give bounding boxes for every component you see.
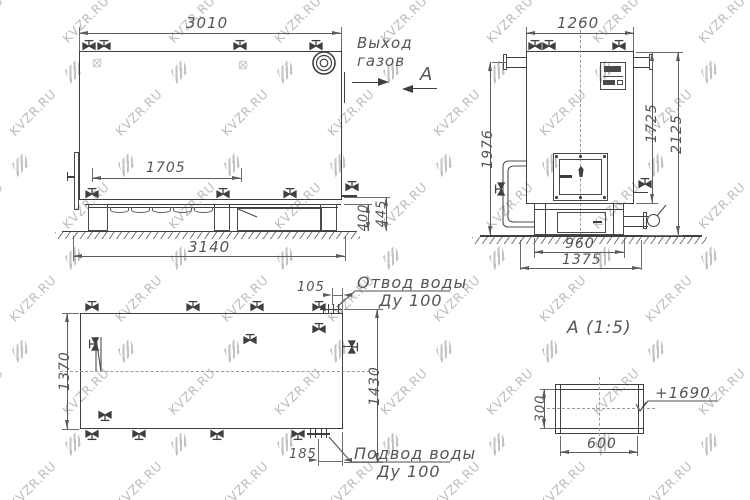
ash-box	[237, 208, 322, 231]
watermark-logo-icon	[224, 338, 241, 363]
watermark-logo-icon	[65, 245, 82, 270]
watermark-text: KVZR.RU	[165, 365, 218, 418]
watermark-text: KVZR.RU	[483, 0, 536, 46]
detail-frame-outer	[555, 384, 644, 434]
base-front	[534, 203, 624, 235]
line	[88, 207, 338, 208]
dim-1430: 1430	[367, 366, 383, 406]
dim-line-400	[368, 204, 369, 231]
line	[344, 309, 383, 310]
watermark-text: KVZR.RU	[695, 0, 748, 46]
watermark-logo-icon	[701, 59, 718, 84]
dim-line-1370	[67, 313, 68, 429]
gas-arrow-line	[352, 82, 380, 83]
valve-icon	[242, 333, 258, 345]
drain-valve-icon	[344, 180, 360, 192]
base-arc	[194, 207, 213, 213]
watermark-text: KVZR.RU	[536, 86, 589, 139]
dim-line-1375	[520, 268, 641, 269]
line	[315, 429, 316, 438]
line	[318, 439, 319, 466]
line	[344, 197, 390, 198]
door-handle	[559, 175, 572, 178]
watermark-text: KVZR.RU	[642, 272, 695, 325]
damper-handle	[657, 205, 666, 216]
watermark-logo-icon	[648, 152, 665, 177]
line	[85, 204, 341, 205]
dim-line-1725	[652, 52, 653, 203]
valve-icon	[84, 429, 100, 441]
drain-valve-icon	[215, 187, 231, 199]
valve-icon	[96, 39, 112, 51]
watermark-logo-icon	[12, 152, 29, 177]
watermark-logo-icon	[489, 245, 506, 270]
valve-icon	[81, 39, 97, 51]
watermark-logo-icon	[65, 431, 82, 456]
watermark-text: KVZR.RU	[0, 365, 6, 418]
line	[560, 436, 561, 456]
watermark-text: KVZR.RU	[218, 272, 271, 325]
view-detail-a: А (1:5) 300 600 +1690	[0, 0, 750, 500]
centerline	[599, 377, 600, 441]
base-door-handle	[593, 221, 602, 223]
watermark-logo-icon	[595, 245, 612, 270]
valve-icon	[97, 410, 113, 422]
watermark-text: KVZR.RU	[271, 365, 324, 418]
ground-hatch	[472, 237, 707, 244]
dim-line-960	[534, 252, 624, 253]
pipe-flange	[503, 54, 507, 70]
watermark-logo-icon	[224, 152, 241, 177]
valve-icon	[311, 322, 327, 334]
view-a-letter: А	[420, 64, 433, 85]
watermark-logo-icon	[383, 59, 400, 84]
line	[636, 52, 683, 53]
watermark-text: KVZR.RU	[695, 365, 748, 418]
pipe-flange	[649, 54, 653, 70]
front-pipe-outer	[503, 161, 534, 227]
watermark-text: KVZR.RU	[6, 272, 59, 325]
plan-left-bracket	[96, 337, 101, 372]
valve-icon	[131, 429, 147, 441]
valve-icon	[232, 39, 248, 51]
watermark-text: KVZR.RU	[271, 179, 324, 232]
centerline	[542, 408, 655, 409]
watermark-logo-icon	[701, 431, 718, 456]
nameplate-band	[603, 80, 615, 85]
line	[345, 236, 346, 261]
line	[520, 240, 521, 270]
dim-line-1976	[490, 62, 491, 235]
line	[341, 27, 342, 51]
watermark-logo-icon	[436, 152, 453, 177]
watermark-logo-icon	[489, 431, 506, 456]
watermark-logo-icon	[171, 59, 188, 84]
line	[344, 72, 346, 103]
nameplate	[600, 62, 626, 90]
line	[326, 429, 327, 438]
line	[526, 27, 527, 51]
watermark-text: KVZR.RU	[377, 365, 430, 418]
line	[624, 226, 648, 227]
drain-valve-icon	[84, 187, 100, 199]
line	[540, 428, 555, 429]
line	[321, 429, 322, 438]
line	[506, 57, 526, 58]
dim-line-1430	[377, 309, 378, 462]
watermark-text: KVZR.RU	[6, 86, 59, 139]
leader-lines	[0, 0, 750, 500]
dim-line-185	[318, 461, 342, 462]
dim-arrow	[343, 293, 352, 297]
elevation-mark-icon	[636, 402, 646, 411]
line	[323, 304, 324, 313]
watermark-logo-icon	[12, 338, 29, 363]
gas-outlet-label-line2: газов	[357, 52, 405, 70]
watermark-text: KVZR.RU	[218, 86, 271, 139]
dim-1370: 1370	[57, 351, 73, 391]
line	[636, 203, 658, 204]
line	[637, 436, 638, 456]
boiler-body-plan	[80, 313, 343, 429]
line	[506, 67, 526, 68]
view-front: 1260	[0, 0, 750, 500]
watermark-text: KVZR.RU	[642, 86, 695, 139]
inlet-flange	[307, 433, 330, 435]
line	[67, 172, 69, 181]
dim-arrow	[343, 458, 352, 462]
dim-3010: 3010	[186, 14, 228, 32]
watermark-text: KVZR.RU	[430, 86, 483, 139]
base-support	[88, 204, 108, 231]
line	[338, 304, 339, 313]
valve-icon	[311, 300, 327, 312]
line	[613, 203, 614, 235]
watermark-text: KVZR.RU	[430, 458, 483, 500]
line	[560, 384, 561, 434]
elevation-label: +1690	[655, 384, 711, 402]
base-arc	[110, 207, 129, 213]
line	[555, 389, 644, 390]
watermark-text: KVZR.RU	[536, 458, 589, 500]
watermark-logo-icon	[330, 338, 347, 363]
detail-title: А (1:5)	[567, 318, 632, 338]
line	[343, 346, 352, 347]
drain-valve-icon	[282, 187, 298, 199]
line	[92, 168, 93, 182]
watermark-text: KVZR.RU	[324, 272, 377, 325]
bolt-dot	[579, 155, 582, 158]
centerline	[580, 30, 581, 236]
valve-icon	[611, 39, 627, 51]
water-inlet-leader	[329, 437, 450, 462]
bolt-dot	[579, 196, 582, 199]
watermark-text: KVZR.RU	[536, 272, 589, 325]
dim-1705: 1705	[146, 160, 186, 176]
dim-960: 960	[565, 236, 595, 252]
bolt-dot	[603, 196, 606, 199]
outlet-flange	[320, 309, 343, 311]
base-arc	[131, 207, 150, 213]
line	[79, 27, 80, 51]
line	[67, 176, 75, 178]
front-pipe-inner	[508, 166, 534, 222]
lifting-eye-icon	[89, 55, 106, 72]
watermark-text: KVZR.RU	[0, 0, 6, 46]
watermark-text: KVZR.RU	[377, 0, 430, 46]
line	[634, 67, 650, 68]
watermark-logo-icon	[489, 59, 506, 84]
watermark-text: KVZR.RU	[589, 179, 642, 232]
watermark-logo-icon	[277, 431, 294, 456]
drawing-canvas: KVZR.RUKVZR.RUKVZR.RUKVZR.RUKVZR.RUKVZR.…	[0, 0, 750, 500]
line	[624, 216, 648, 217]
water-outlet-label-line1: Отвод воды	[357, 273, 467, 292]
dim-445: 445	[374, 200, 389, 228]
dim-600: 600	[587, 436, 617, 452]
view-a-arrow-line	[411, 88, 437, 89]
line	[341, 195, 357, 197]
watermark-text: KVZR.RU	[165, 0, 218, 46]
line	[641, 240, 642, 270]
water-inlet-label-line1: Подвод воды	[354, 444, 476, 463]
water-outlet-leader	[337, 291, 450, 307]
watermark-text: KVZR.RU	[589, 365, 642, 418]
nameplate-band	[604, 66, 621, 72]
watermark-text: KVZR.RU	[59, 179, 112, 232]
line	[62, 429, 79, 430]
line	[638, 384, 639, 434]
watermark-text: KVZR.RU	[112, 86, 165, 139]
line	[545, 203, 546, 235]
dim-line-2125	[678, 52, 679, 235]
watermark-text: KVZR.RU	[430, 272, 483, 325]
watermark-text: KVZR.RU	[695, 179, 748, 232]
bolt-dot	[555, 196, 558, 199]
watermark-text: KVZR.RU	[483, 365, 536, 418]
lifting-eye-icon	[235, 57, 252, 74]
watermark-text: KVZR.RU	[112, 272, 165, 325]
watermark-logo-icon	[595, 431, 612, 456]
line	[241, 168, 242, 182]
watermark-text: KVZR.RU	[112, 458, 165, 500]
watermark-text: KVZR.RU	[59, 0, 112, 46]
side-hinge-strip	[74, 152, 79, 210]
watermark-text: KVZR.RU	[59, 365, 112, 418]
pipe-valve-icon	[494, 181, 506, 197]
view-a-arrow-icon	[402, 85, 413, 93]
pipe-flange	[643, 212, 647, 229]
ground-line	[480, 235, 702, 237]
dim-line-3010	[79, 33, 341, 34]
watermark-logo-icon	[595, 59, 612, 84]
line	[492, 62, 506, 63]
ground-line	[62, 231, 357, 233]
line	[333, 304, 334, 313]
watermark-logo-icon	[171, 431, 188, 456]
line	[643, 235, 683, 236]
bolt-dot	[555, 155, 558, 158]
base-slant-line	[238, 209, 257, 217]
watermark-logo-icon	[383, 245, 400, 270]
line	[342, 432, 343, 466]
line	[534, 238, 535, 258]
watermark-logo-icon	[701, 245, 718, 270]
damper-icon	[647, 214, 660, 227]
valve-icon	[209, 429, 225, 441]
ground-hatch	[55, 232, 360, 239]
dim-arrow	[323, 293, 332, 297]
watermark-logo-icon	[542, 152, 559, 177]
line	[555, 428, 644, 429]
dim-2125: 2125	[669, 114, 685, 154]
line	[332, 288, 333, 305]
line	[534, 209, 624, 210]
watermark-text: KVZR.RU	[6, 458, 59, 500]
line	[344, 204, 372, 205]
dim-1725: 1725	[644, 103, 660, 143]
centerline	[60, 371, 375, 372]
watermark-logo-icon	[118, 338, 135, 363]
line	[344, 462, 383, 463]
watermark-text: KVZR.RU	[0, 179, 6, 232]
base-arc	[173, 207, 192, 213]
watermark-text: KVZR.RU	[324, 458, 377, 500]
boiler-body-front	[526, 51, 634, 204]
watermark-logo-icon	[277, 245, 294, 270]
boiler-body-side	[79, 51, 342, 200]
line	[540, 389, 555, 390]
view-plan: 1370 105 Отвод воды Ду 100	[0, 0, 750, 500]
dim-105: 105	[297, 280, 325, 295]
dim-1375: 1375	[562, 252, 602, 268]
watermark-logo-icon	[383, 431, 400, 456]
watermark-layer: KVZR.RUKVZR.RUKVZR.RUKVZR.RUKVZR.RUKVZR.…	[0, 0, 750, 500]
dim-line-1705	[92, 178, 241, 179]
watermark-text: KVZR.RU	[271, 0, 324, 46]
watermark-logo-icon	[171, 245, 188, 270]
base-support	[320, 204, 337, 231]
valve-icon	[347, 339, 359, 355]
valve-icon	[84, 300, 100, 312]
watermark-text: KVZR.RU	[165, 179, 218, 232]
water-outlet-label-line2: Ду 100	[379, 291, 443, 310]
base-support	[214, 204, 230, 231]
watermark-logo-icon	[118, 152, 135, 177]
water-inlet-label-line2: Ду 100	[377, 462, 441, 481]
dim-1260: 1260	[557, 14, 599, 32]
watermark-text: KVZR.RU	[642, 458, 695, 500]
line	[310, 429, 311, 438]
watermark-text: KVZR.RU	[324, 86, 377, 139]
valve-icon	[541, 39, 557, 51]
view-side: 3010 1705	[0, 0, 750, 500]
valve-icon	[290, 429, 306, 441]
valve-icon	[527, 39, 543, 51]
watermark-logo-icon	[65, 59, 82, 84]
gas-flange-icon	[311, 50, 337, 76]
watermark-text: KVZR.RU	[589, 0, 642, 46]
furnace-door	[553, 153, 608, 201]
line	[634, 192, 648, 194]
valve-icon	[308, 39, 324, 51]
dim-line-600	[560, 452, 638, 453]
valve-icon	[185, 300, 201, 312]
nameplate-band	[617, 80, 623, 85]
dim-185: 185	[289, 447, 317, 462]
dim-400: 400	[356, 204, 371, 232]
dim-line-1260	[526, 33, 634, 34]
watermark-logo-icon	[542, 338, 559, 363]
dim-line-105	[332, 295, 342, 296]
watermark-logo-icon	[648, 338, 665, 363]
watermark-text: KVZR.RU	[377, 179, 430, 232]
valve-icon	[637, 177, 653, 189]
bolt-dot	[603, 155, 606, 158]
line	[624, 238, 625, 258]
nameplate-band	[603, 76, 623, 77]
line	[634, 57, 650, 58]
base-door	[557, 212, 606, 233]
watermark-logo-icon	[436, 338, 453, 363]
watermark-text: KVZR.RU	[483, 179, 536, 232]
valve-icon	[249, 300, 265, 312]
watermark-logo-icon	[330, 152, 347, 177]
base-arc	[152, 207, 171, 213]
keyhole-icon	[577, 166, 585, 177]
dim-300: 300	[533, 395, 548, 423]
gas-arrow-icon	[378, 78, 389, 86]
watermark-logo-icon	[277, 59, 294, 84]
elevation-leader	[640, 401, 717, 411]
dim-line-300	[544, 389, 545, 428]
watermark-text: KVZR.RU	[218, 458, 271, 500]
dim-line-3140	[73, 256, 345, 257]
line	[328, 304, 329, 313]
line	[73, 236, 74, 261]
dim-1976: 1976	[480, 129, 496, 169]
valve-icon	[88, 336, 100, 352]
dim-arrow	[309, 458, 318, 462]
dim-line-445	[386, 197, 387, 231]
line	[342, 288, 343, 313]
dim-3140: 3140	[188, 238, 230, 256]
line	[62, 313, 79, 314]
line	[633, 27, 634, 51]
gas-outlet-label-line1: Выход	[357, 34, 413, 52]
furnace-door-inner	[559, 159, 602, 195]
